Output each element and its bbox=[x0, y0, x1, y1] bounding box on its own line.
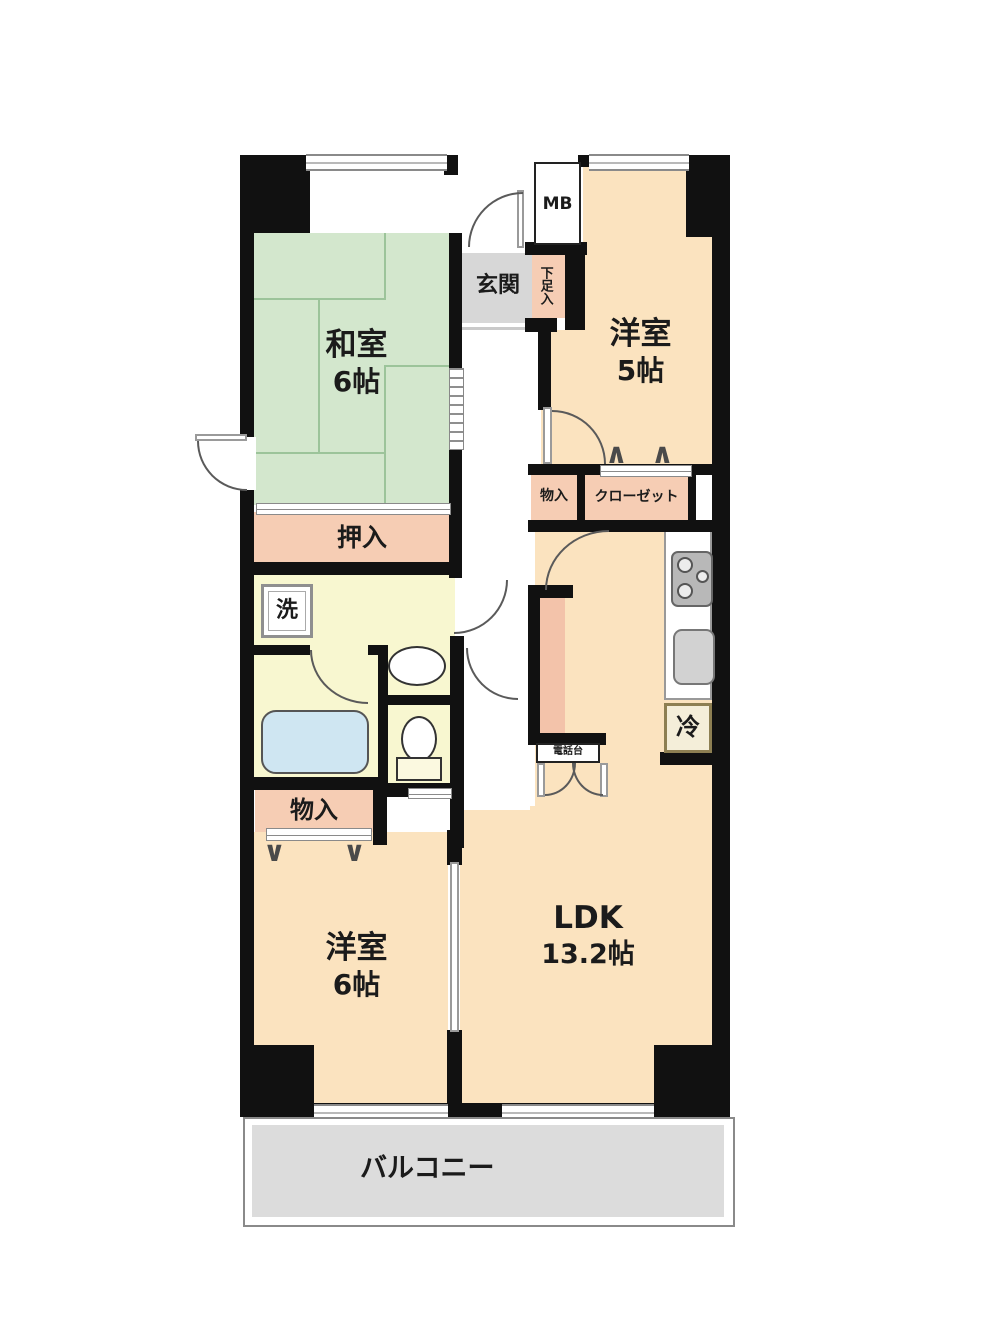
stove-burner bbox=[677, 583, 693, 599]
washitsu-name: 和室 bbox=[294, 329, 419, 362]
wall bbox=[577, 464, 585, 526]
wall bbox=[388, 695, 455, 705]
corridor bbox=[460, 330, 530, 810]
meter-box-label: MB bbox=[536, 196, 579, 214]
wall bbox=[538, 330, 551, 410]
wall bbox=[528, 520, 712, 532]
closet-side-gap bbox=[696, 474, 712, 520]
bifold-mark: ∨ bbox=[343, 838, 366, 866]
window bbox=[589, 154, 689, 171]
washitsu-size: 6帖 bbox=[294, 367, 419, 396]
tatami-line bbox=[254, 298, 386, 300]
wall bbox=[528, 585, 540, 745]
ldk-size: 13.2帖 bbox=[523, 941, 653, 969]
youshitsu5-size: 5帖 bbox=[578, 356, 703, 385]
closet-label: クローゼット bbox=[585, 490, 688, 505]
ldk-name: LDK bbox=[523, 902, 653, 935]
basin-icon bbox=[388, 646, 446, 686]
room-partition bbox=[450, 862, 459, 1032]
youshitsu6-name: 洋室 bbox=[294, 932, 419, 965]
toilet-tank-icon bbox=[396, 757, 442, 781]
toilet-bowl-icon bbox=[401, 716, 437, 762]
ldk-door-leaf bbox=[537, 763, 545, 797]
washer-label: 洗 bbox=[264, 599, 310, 622]
stove-burner bbox=[677, 557, 693, 573]
hall-counter-fill bbox=[540, 598, 565, 733]
getabako-label: 下足入 bbox=[538, 256, 552, 314]
meter-box: MB bbox=[534, 162, 581, 245]
genkan-label: 玄関 bbox=[462, 274, 534, 297]
shoji-screen bbox=[449, 368, 464, 450]
wall bbox=[686, 155, 730, 237]
floor-plan: MB 冷 洗 電話台 ∧ ∧ ∨ ∨ bbox=[0, 0, 1000, 1334]
oshiire-label: 押入 bbox=[302, 525, 422, 551]
balcony-label: バルコニー bbox=[360, 1155, 494, 1183]
youshitsu6-size: 6帖 bbox=[294, 970, 419, 999]
tatami-line bbox=[254, 452, 386, 454]
wall bbox=[660, 752, 712, 765]
stove-icon bbox=[671, 551, 713, 607]
balcony: バルコニー bbox=[243, 1117, 735, 1227]
side-door-arc bbox=[197, 441, 247, 491]
bifold-mark: ∧ bbox=[651, 440, 674, 468]
wall bbox=[378, 645, 388, 795]
fridge-box: 冷 bbox=[664, 703, 712, 753]
wall bbox=[240, 777, 373, 790]
phone-stand-label: 電話台 bbox=[538, 747, 598, 758]
bathtub-icon bbox=[261, 710, 369, 774]
washer-box: 洗 bbox=[261, 584, 313, 638]
wall bbox=[447, 1030, 462, 1105]
wall bbox=[447, 830, 462, 865]
toilet-slider bbox=[408, 788, 452, 799]
youshitsu5-name: 洋室 bbox=[578, 318, 703, 351]
bifold-mark: ∨ bbox=[263, 838, 286, 866]
wall bbox=[449, 233, 462, 368]
wall bbox=[654, 1045, 730, 1117]
window bbox=[306, 154, 447, 171]
wall bbox=[373, 777, 387, 845]
wall bbox=[450, 636, 464, 848]
side-door-leaf bbox=[195, 434, 247, 441]
sink-icon bbox=[673, 629, 715, 685]
fridge-label: 冷 bbox=[667, 715, 709, 740]
tatami-line bbox=[384, 233, 386, 299]
fusuma-slider bbox=[256, 503, 451, 515]
bifold-mark: ∧ bbox=[605, 440, 628, 468]
phone-stand-box: 電話台 bbox=[536, 743, 600, 763]
youshitsu5-door-leaf bbox=[543, 407, 552, 464]
wall bbox=[240, 645, 310, 655]
monoire-upper-label: 物入 bbox=[531, 489, 577, 504]
wall bbox=[240, 162, 254, 1105]
monoire-lower-label: 物入 bbox=[255, 798, 373, 823]
stove-burner bbox=[696, 570, 709, 583]
wall bbox=[240, 562, 455, 575]
